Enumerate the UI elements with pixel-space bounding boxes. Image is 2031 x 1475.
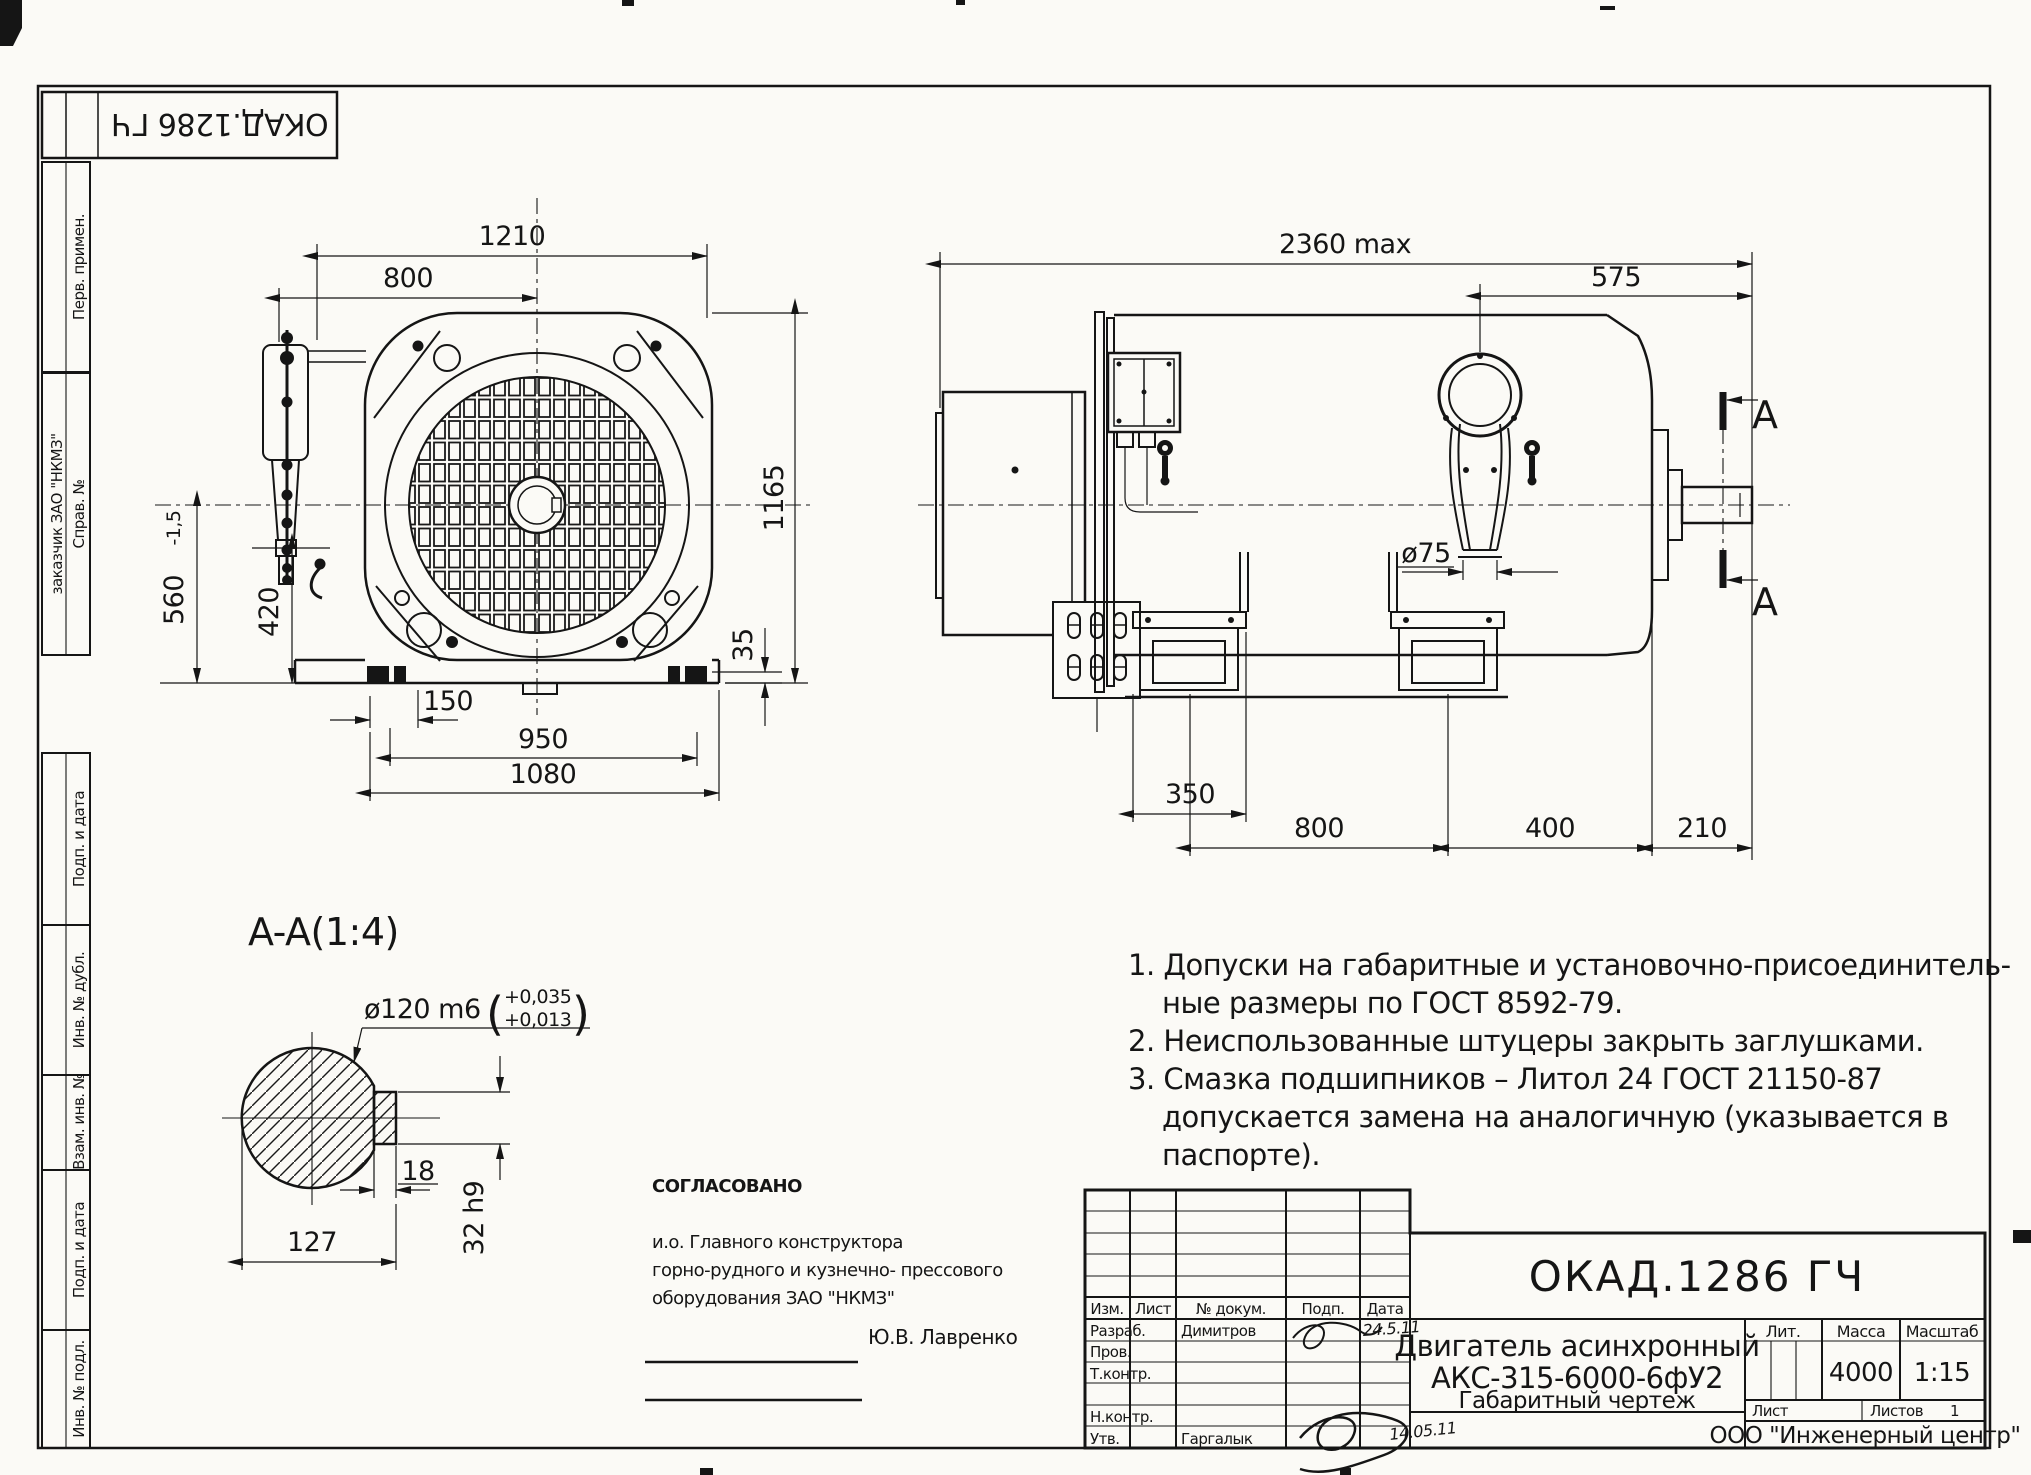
side-view: A A 2360 max 575 ø75 350 [918,229,1790,860]
tb-razrab-name: Димитров [1181,1322,1256,1340]
brush-terminal-box [1053,602,1140,732]
tb-header-izm: Изм. [1090,1300,1123,1318]
note-line: паспорте). [1162,1138,1320,1172]
dim-35: 35 [728,628,759,661]
tb-row-prov: Пров. [1090,1343,1131,1361]
sidebar-item-label: Подп. и дата [70,791,88,887]
sidebar-item-label: Справ. № [70,480,88,549]
section-marker-a-top: A [1752,393,1778,437]
tb-lit-label: Лит. [1766,1322,1801,1341]
dim-800s: 800 [1294,813,1344,844]
tb-row-tkontr: Т.контр. [1089,1365,1151,1383]
drawing-sheet: ОКАД.1286 ГЧ Перв. примен. Справ. № зака… [0,0,2031,1475]
dim-1165: 1165 [759,465,790,532]
dim-560: 560 [159,575,190,625]
approval-signer: Ю.В. Лавренко [868,1325,1018,1349]
tb-company: ООО "Инженерный центр" [1710,1423,2021,1449]
dim-800: 800 [383,263,433,294]
sidebar-item-label: Инв. № дубл. [70,952,88,1049]
title-block: Изм. Лист № докум. Подп. Дата Разраб. Ди… [1085,1190,2020,1472]
tb-masshtab-value: 1:15 [1914,1358,1970,1388]
side-dimensions: 2360 max 575 ø75 350 800 400 210 [940,229,1752,860]
sidebar-item-label: Инв. № подл. [70,1340,88,1437]
stamp-code: ОКАД.1286 ГЧ [111,106,328,141]
technical-notes: 1. Допуски на габаритные и установочно-п… [1128,948,2011,1172]
note-line: 3. Смазка подшипников – Литол 24 ГОСТ 21… [1128,1062,1882,1096]
tb-utv-name: Гаргалык [1181,1430,1253,1448]
dim-1080: 1080 [510,759,577,790]
dim-150: 150 [423,686,473,717]
tb-header-ndokum: № докум. [1196,1300,1266,1318]
dim-2360: 2360 max [1279,229,1412,260]
tb-row-razrab: Разраб. [1090,1322,1145,1340]
side-terminal-box [1108,353,1198,512]
tol-upper: +0,035 [504,986,571,1008]
tb-massa-label: Масса [1837,1322,1886,1341]
dim-210: 210 [1677,813,1727,844]
dim-400: 400 [1525,813,1575,844]
approval-block: СОГЛАСОВАНО и.о. Главного конструктора г… [645,1176,1018,1400]
tb-listov-value: 1 [1950,1402,1959,1420]
dim-575: 575 [1591,262,1641,293]
dim-32h9: 32 h9 [459,1181,490,1256]
sidebar-item-label: Перв. примен. [70,214,88,320]
sidebar: Перв. примен. Справ. № заказчик ЗАО "НКМ… [42,162,90,1448]
dim-560-tol: -1,5 [163,510,185,545]
tb-doc-code: ОКАД.1286 ГЧ [1529,1252,1865,1301]
dim-420: 420 [254,587,285,637]
front-view: 1210 800 1165 35 560 -1,5 420 150 [155,198,812,801]
dim-1210: 1210 [479,221,546,252]
tb-listov-label: Листов [1870,1402,1923,1420]
eyebolt-icon [1157,440,1173,486]
tb-header-podp: Подп. [1302,1300,1345,1318]
tb-header-data: Дата [1367,1300,1404,1318]
note-line: 2. Неиспользованные штуцеры закрыть загл… [1128,1024,1924,1058]
drawing-canvas: ОКАД.1286 ГЧ Перв. примен. Справ. № зака… [0,0,2031,1475]
section-cut-marker: A A [1723,392,1778,624]
tol-lower: +0,013 [504,1009,571,1031]
approval-line: оборудования ЗАО "НКМЗ" [652,1288,895,1309]
ground-hook-icon [311,559,325,599]
section-title: A-A(1:4) [248,910,399,954]
tb-masshtab-label: Масштаб [1906,1322,1979,1341]
dim-shaft-dia: ø120 m6 [364,994,481,1025]
note-line: 1. Допуски на габаритные и установочно-п… [1128,948,2011,982]
approval-heading: СОГЛАСОВАНО [652,1176,802,1197]
note-line: ные размеры по ГОСТ 8592-79. [1162,986,1623,1020]
eyebolt-icon [1524,440,1540,486]
dim-18: 18 [401,1156,434,1187]
approval-line: и.о. Главного конструктора [652,1232,903,1253]
tb-header-list: Лист [1135,1300,1172,1318]
dim-950: 950 [518,724,568,755]
sidebar-item-label: заказчик ЗАО "НКМЗ" [48,433,66,594]
dim-127: 127 [287,1227,337,1258]
tb-product-name-1: Двигатель асинхронный [1394,1329,1759,1363]
tb-list-label: Лист [1752,1402,1789,1420]
tol-paren-close: ) [572,987,589,1041]
section-marker-a-bottom: A [1752,580,1778,624]
tb-massa-value: 4000 [1829,1358,1893,1388]
lifting-eye [1439,353,1521,557]
side-feet [1125,552,1508,697]
tb-doc-type: Габаритный чертеж [1459,1388,1696,1414]
note-line: допускается замена на аналогичную (указы… [1162,1100,1948,1134]
stamp-box: ОКАД.1286 ГЧ [42,92,337,158]
sidebar-item-label: Подп. и дата [70,1202,88,1298]
section-dia-dim: ø120 m6 ( +0,035 +0,013 ) [354,986,590,1062]
section-view: A-A(1:4) ø120 m6 ( +0,035 +0,013 ) 18 32… [222,910,590,1270]
tb-row-utv: Утв. [1090,1430,1120,1448]
tol-paren-open: ( [486,987,503,1041]
approval-line: горно-рудного и кузнечно- прессового [652,1260,1003,1281]
tb-row-nkontr: Н.контр. [1090,1408,1153,1426]
dim-75: ø75 [1401,538,1450,569]
sidebar-item-label: Взам. инв. № [70,1074,88,1170]
